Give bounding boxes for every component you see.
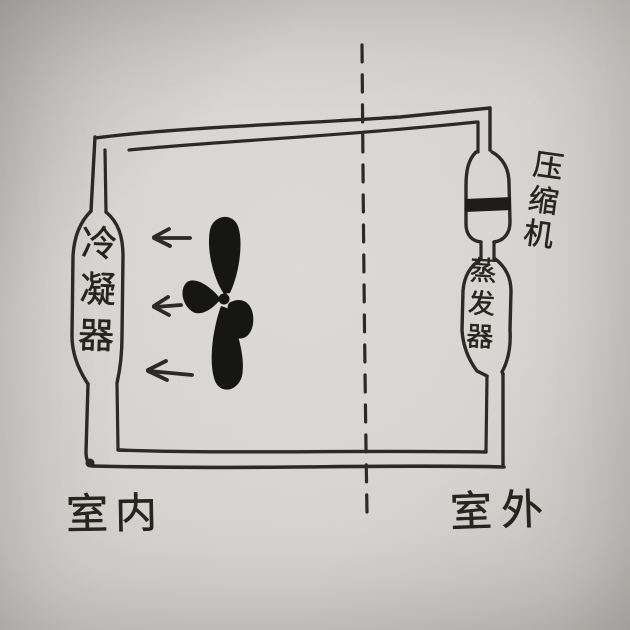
compressor-piston-band — [465, 197, 511, 212]
condenser-label: 冷凝器 — [75, 221, 121, 361]
evaporator-label: 蒸发器 — [463, 255, 499, 355]
outdoor-label: 室外 — [449, 475, 553, 540]
indoor-label: 室内 — [65, 479, 164, 542]
sketch-canvas: 冷凝器 压缩机 蒸发器 室内 室外 — [0, 0, 630, 630]
